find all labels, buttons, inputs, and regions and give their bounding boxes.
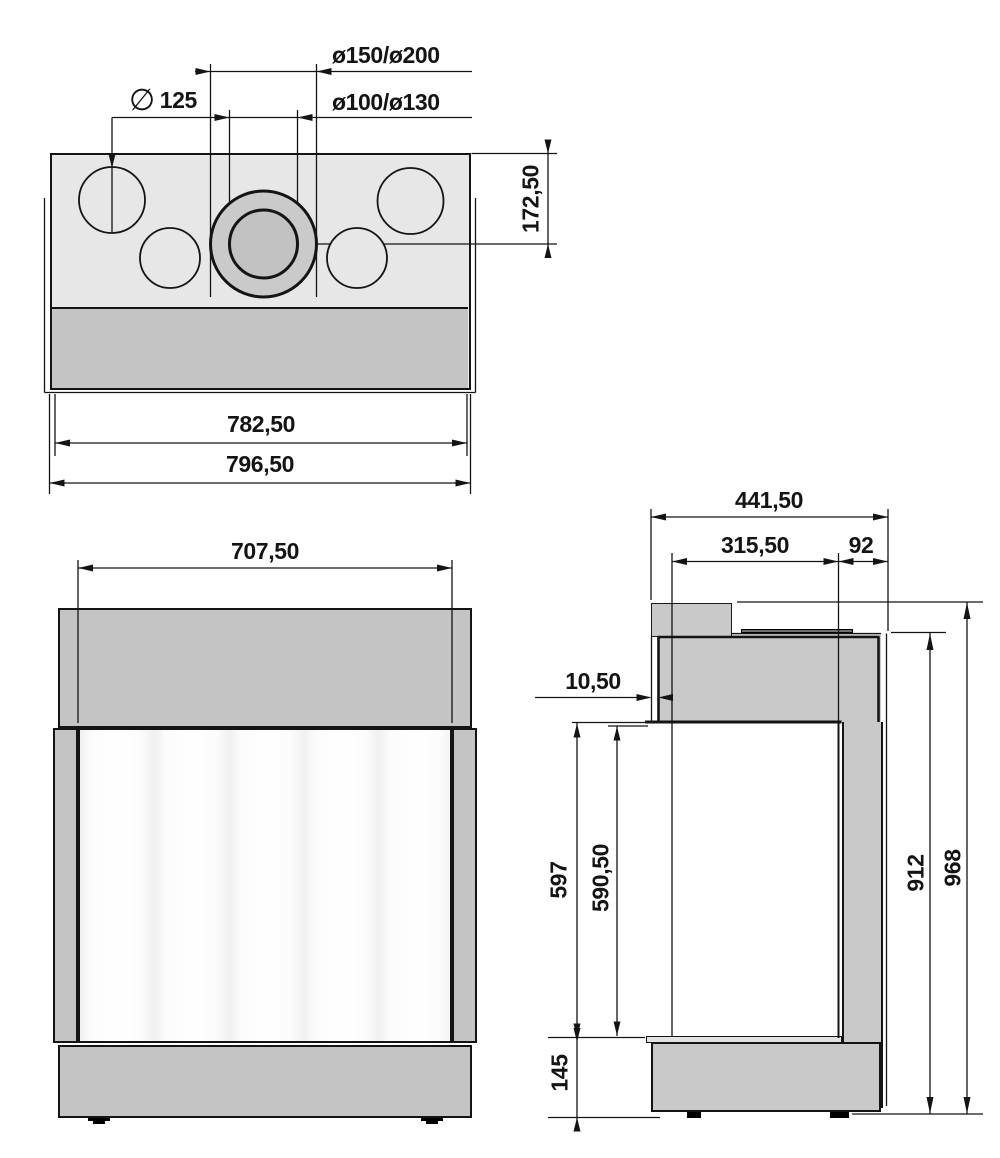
dim-label-total-depth: 441,50 <box>735 489 803 512</box>
dim-label-body-width: 782,50 <box>227 413 295 436</box>
dim-label-rear-height: 912 <box>904 854 927 891</box>
dim-label-total-height: 968 <box>941 849 964 886</box>
technical-drawing-canvas: ø150/ø200 ø100/ø130 ∅125 172,50 782,50 7… <box>0 0 1000 1158</box>
dim-label-glass-height: 590,50 <box>589 844 612 912</box>
dim-label-flue-diameter: ø150/ø200 <box>332 44 440 67</box>
dimension-linework <box>0 0 1000 1158</box>
dim-label-glass-width: 707,50 <box>231 540 299 563</box>
dim-label-flue-offset: 172,50 <box>519 165 542 233</box>
front-view-lines <box>78 560 452 723</box>
side-view-arrows <box>574 514 971 1132</box>
diameter-symbol: ∅ <box>129 83 155 118</box>
dim-label-total-width: 796,50 <box>226 453 294 476</box>
dim-label-opening-height: 597 <box>547 861 570 898</box>
hole-circle-outer-right <box>378 168 444 234</box>
dim-label-glass-inset: 10,50 <box>565 670 621 693</box>
dim-label-glass-depth: 315,50 <box>721 534 789 557</box>
dim-label-rear-depth: 92 <box>849 534 874 557</box>
hole-circle-inner-left <box>140 228 200 288</box>
top-view-circles <box>79 167 444 297</box>
dim-label-hole-diameter: ∅125 <box>129 84 197 114</box>
dim-label-base-height: 145 <box>548 1054 571 1091</box>
side-view-lines <box>535 509 983 1131</box>
hole-circle-inner-right <box>327 228 387 288</box>
dim-label-air-diameter: ø100/ø130 <box>332 91 440 114</box>
flue-inner-circle <box>230 210 298 278</box>
